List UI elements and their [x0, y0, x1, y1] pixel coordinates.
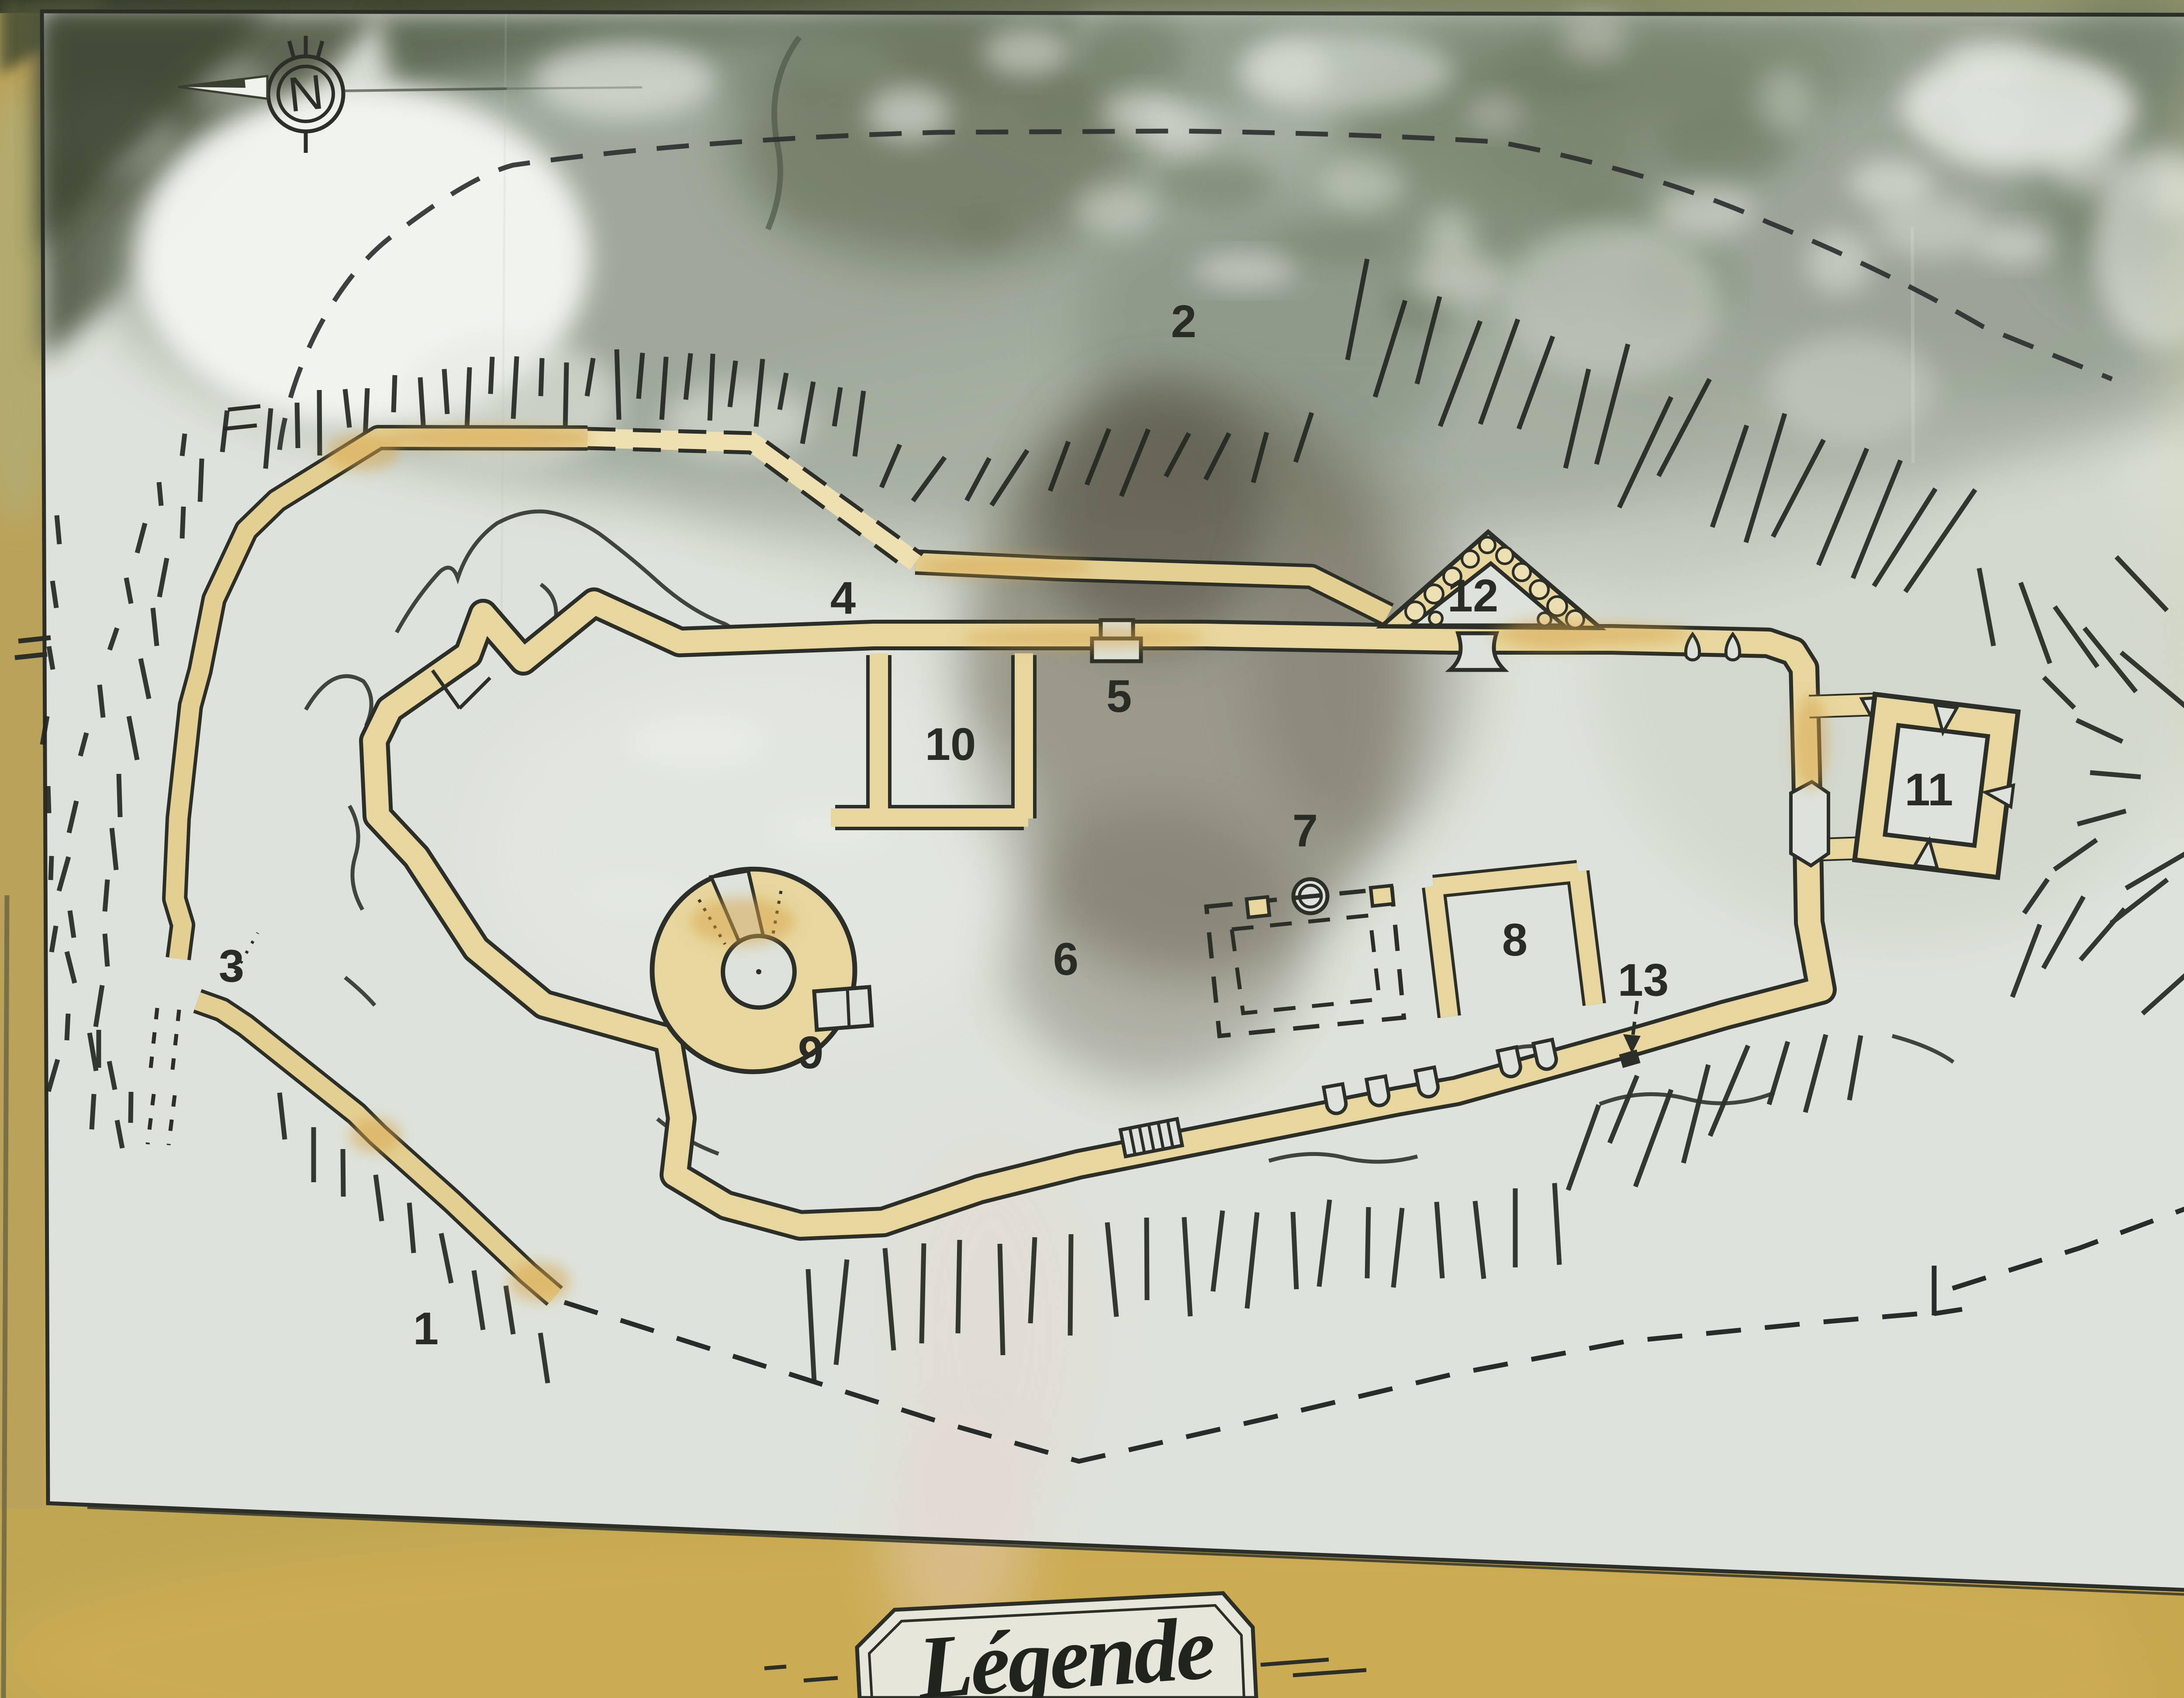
svg-text:3: 3	[219, 941, 244, 992]
svg-text:6: 6	[1053, 934, 1078, 985]
svg-text:12: 12	[1448, 570, 1499, 621]
svg-text:1: 1	[413, 1303, 439, 1354]
svg-text:8: 8	[1502, 915, 1527, 966]
svg-text:2: 2	[1171, 296, 1196, 347]
svg-text:5: 5	[1106, 671, 1132, 722]
svg-text:9: 9	[798, 1027, 823, 1078]
svg-text:4: 4	[830, 573, 856, 624]
svg-text:7: 7	[1292, 805, 1318, 856]
svg-text:13: 13	[1618, 955, 1669, 1006]
svg-text:11: 11	[1905, 764, 1953, 815]
svg-text:N: N	[285, 64, 326, 122]
svg-text:10: 10	[925, 719, 976, 770]
